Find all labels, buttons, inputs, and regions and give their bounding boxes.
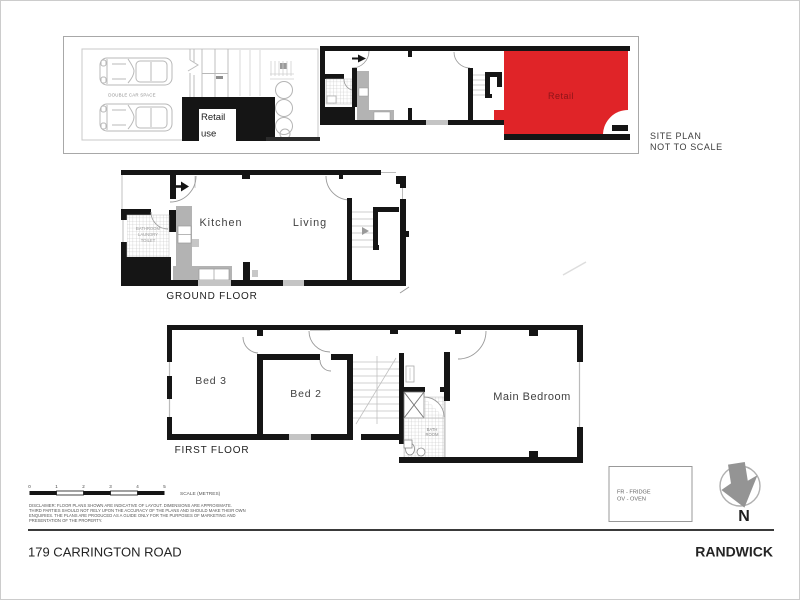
svg-text:179 CARRINGTON ROAD: 179 CARRINGTON ROAD bbox=[28, 545, 182, 560]
svg-text:N: N bbox=[738, 508, 750, 525]
svg-text:RANDWICK: RANDWICK bbox=[695, 544, 773, 560]
svg-text:LAUNDRY: LAUNDRY bbox=[138, 232, 158, 237]
svg-text:SCALE (METRES): SCALE (METRES) bbox=[180, 491, 221, 497]
svg-text:GROUND FLOOR: GROUND FLOOR bbox=[166, 291, 257, 302]
svg-text:SITE PLAN: SITE PLAN bbox=[650, 131, 701, 141]
svg-text:OV - OVEN: OV - OVEN bbox=[617, 497, 646, 503]
svg-text:Main Bedroom: Main Bedroom bbox=[493, 391, 571, 403]
svg-text:Bed 2: Bed 2 bbox=[290, 388, 321, 400]
svg-text:Bed 3: Bed 3 bbox=[195, 375, 226, 387]
svg-text:FIRST FLOOR: FIRST FLOOR bbox=[175, 445, 250, 456]
svg-text:NOT TO SCALE: NOT TO SCALE bbox=[650, 142, 723, 152]
svg-text:Kitchen: Kitchen bbox=[199, 217, 242, 229]
svg-text:PRESENTATION OF THE PROPERTY.: PRESENTATION OF THE PROPERTY. bbox=[29, 518, 102, 523]
svg-text:Retail: Retail bbox=[201, 112, 225, 123]
svg-text:BATHROOM: BATHROOM bbox=[136, 226, 160, 231]
svg-text:TOILET: TOILET bbox=[141, 238, 156, 243]
svg-text:Living: Living bbox=[293, 217, 327, 229]
svg-text:Retail: Retail bbox=[548, 91, 574, 101]
svg-text:ROOM: ROOM bbox=[425, 432, 439, 437]
svg-text:use: use bbox=[201, 129, 216, 140]
svg-text:FR - FRIDGE: FR - FRIDGE bbox=[617, 490, 651, 496]
svg-text:DOUBLE CAR SPACE: DOUBLE CAR SPACE bbox=[108, 93, 156, 98]
